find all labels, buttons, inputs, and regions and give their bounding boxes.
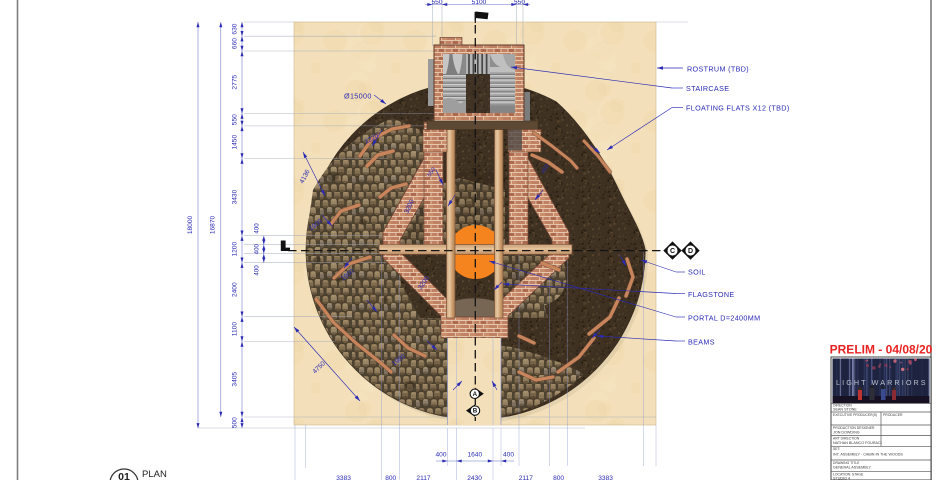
svg-text:STAIRCASE: STAIRCASE: [686, 84, 729, 93]
svg-text:JON DOWDING: JON DOWDING: [833, 431, 860, 435]
svg-text:ROSTRUM (TBD): ROSTRUM (TBD): [687, 65, 749, 74]
svg-text:400: 400: [254, 243, 261, 254]
svg-text:660: 660: [232, 38, 239, 49]
svg-text:Ø15000: Ø15000: [344, 92, 372, 101]
svg-text:550: 550: [514, 0, 525, 6]
svg-text:SOIL: SOIL: [688, 268, 706, 277]
svg-text:B: B: [473, 408, 478, 415]
svg-text:PRODUCER: PRODUCER: [883, 413, 903, 417]
svg-text:550: 550: [431, 0, 442, 6]
svg-text:PLAN: PLAN: [142, 469, 167, 480]
svg-text:NATHAN BLANCO FOURACI: NATHAN BLANCO FOURACI: [833, 441, 882, 445]
svg-text:1450: 1450: [232, 135, 239, 150]
svg-text:800: 800: [385, 475, 396, 480]
svg-text:FLAGSTONE: FLAGSTONE: [688, 290, 735, 299]
svg-text:1640: 1640: [467, 452, 482, 459]
svg-text:DRAWING TITLE: DRAWING TITLE: [833, 461, 860, 465]
svg-text:PRELIM - 04/08/20: PRELIM - 04/08/20: [830, 343, 933, 357]
svg-text:C: C: [670, 248, 675, 255]
svg-text:550: 550: [232, 114, 239, 125]
svg-text:2117: 2117: [416, 475, 431, 480]
svg-text:SEAN STONE: SEAN STONE: [833, 408, 857, 412]
svg-text:3405: 3405: [232, 372, 239, 387]
svg-text:1100: 1100: [232, 322, 239, 337]
svg-text:2775: 2775: [232, 75, 239, 90]
svg-text:400: 400: [503, 452, 514, 459]
svg-text:5100: 5100: [472, 0, 487, 6]
svg-text:630: 630: [232, 23, 239, 34]
svg-text:EXECUTIVE PRODUCER(S): EXECUTIVE PRODUCER(S): [833, 413, 877, 417]
svg-text:16870: 16870: [210, 216, 217, 235]
svg-text:500: 500: [232, 417, 239, 428]
svg-text:400: 400: [435, 452, 446, 459]
svg-text:SET:: SET:: [833, 447, 840, 451]
svg-text:BEAMS: BEAMS: [688, 338, 715, 347]
svg-text:800: 800: [553, 475, 564, 480]
svg-text:FLOATING FLATS X12 (TBD): FLOATING FLATS X12 (TBD): [686, 104, 790, 113]
svg-text:3430: 3430: [232, 189, 239, 204]
svg-text:400: 400: [254, 223, 261, 234]
svg-text:GENERAL ASSEMBLY: GENERAL ASSEMBLY: [833, 466, 871, 470]
svg-text:01: 01: [118, 471, 130, 480]
svg-text:18000: 18000: [187, 216, 194, 235]
svg-text:400: 400: [254, 265, 261, 276]
svg-text:LIGHT WARRIORS: LIGHT WARRIORS: [836, 378, 928, 387]
svg-text:2400: 2400: [232, 282, 239, 297]
svg-text:1200: 1200: [232, 242, 239, 257]
svg-text:D: D: [688, 248, 693, 255]
svg-text:3383: 3383: [598, 475, 613, 480]
svg-text:ART DIRECTION: ART DIRECTION: [833, 437, 860, 441]
svg-text:PRODUCTION DESIGNER: PRODUCTION DESIGNER: [833, 426, 875, 430]
svg-text:2117: 2117: [519, 475, 534, 480]
svg-text:STUDIO 4: STUDIO 4: [833, 477, 850, 481]
svg-text:3383: 3383: [336, 475, 351, 480]
svg-text:2430: 2430: [467, 475, 482, 480]
svg-text:INT. ASSEMBLY - CABIN IN THE W: INT. ASSEMBLY - CABIN IN THE WOODS: [833, 453, 903, 457]
svg-text:A: A: [473, 391, 478, 398]
svg-text:PORTAL D=2400MM: PORTAL D=2400MM: [688, 314, 760, 323]
